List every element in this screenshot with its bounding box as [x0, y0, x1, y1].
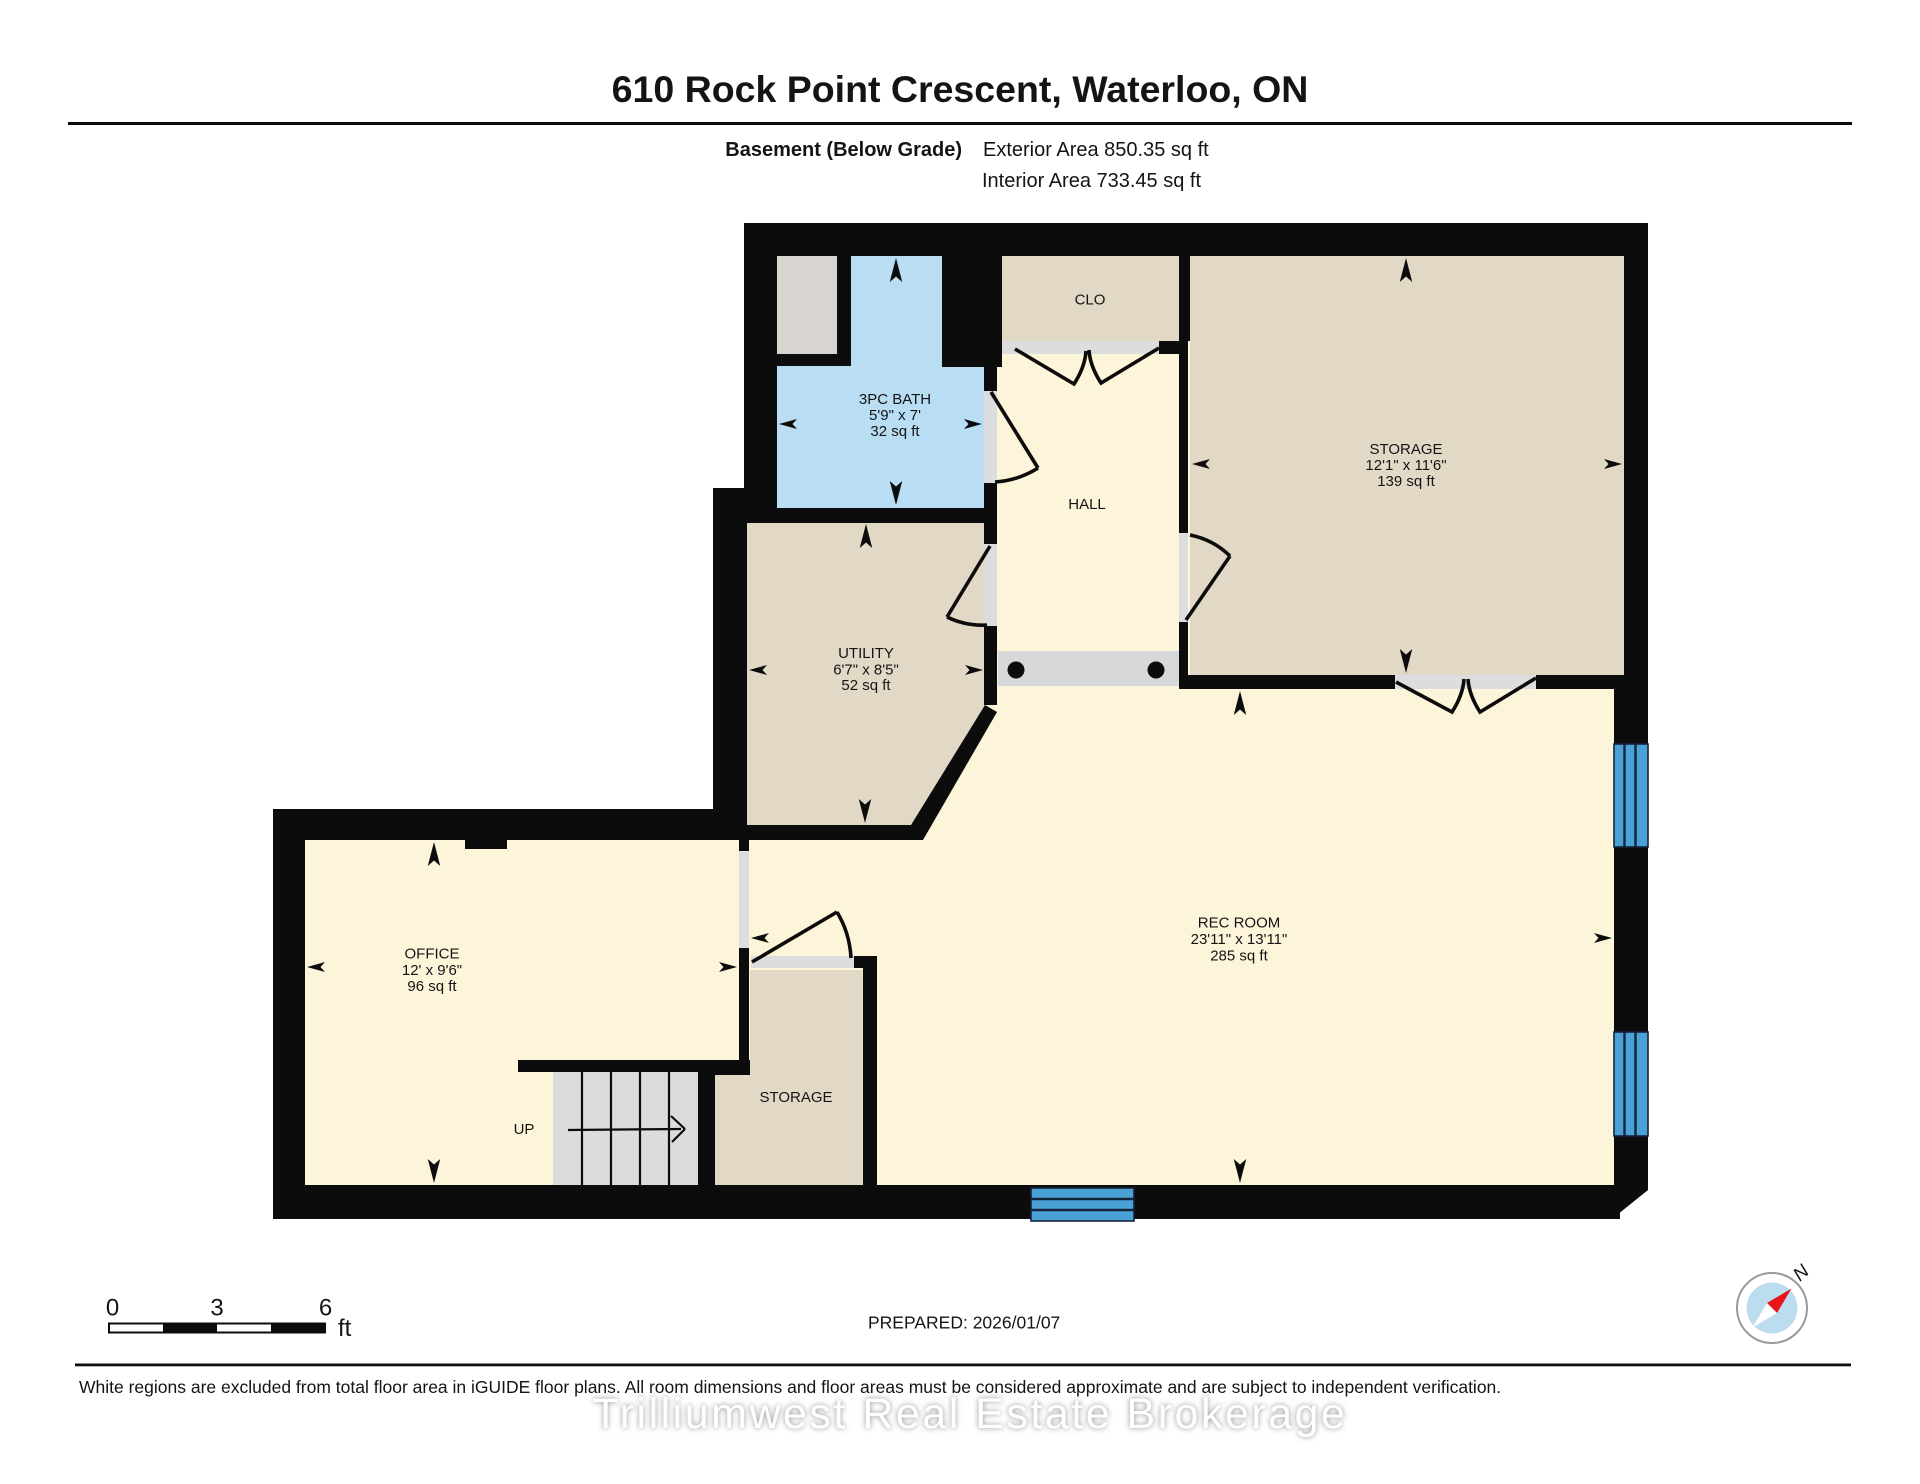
svg-text:5'9" x 7': 5'9" x 7' — [869, 407, 921, 424]
svg-text:STORAGE: STORAGE — [1369, 441, 1442, 458]
svg-text:52 sq ft: 52 sq ft — [841, 677, 891, 694]
svg-text:6: 6 — [319, 1295, 332, 1322]
svg-text:Trilliumwest Real Estate Broke: Trilliumwest Real Estate Brokerage — [593, 1390, 1348, 1438]
svg-text:23'11" x 13'11": 23'11" x 13'11" — [1191, 931, 1288, 948]
svg-text:Basement (Below Grade): Basement (Below Grade) — [725, 139, 962, 161]
svg-text:Exterior Area 850.35 sq ft: Exterior Area 850.35 sq ft — [983, 139, 1209, 161]
svg-text:CLO: CLO — [1075, 292, 1106, 309]
svg-text:12'1" x 11'6": 12'1" x 11'6" — [1365, 457, 1446, 474]
svg-text:STORAGE: STORAGE — [759, 1089, 832, 1106]
svg-text:139 sq ft: 139 sq ft — [1377, 473, 1435, 490]
svg-text:OFFICE: OFFICE — [405, 945, 460, 962]
svg-text:HALL: HALL — [1068, 496, 1106, 513]
svg-text:PREPARED: 2026/01/07: PREPARED: 2026/01/07 — [868, 1313, 1060, 1333]
svg-text:610 Rock Point Crescent, Water: 610 Rock Point Crescent, Waterloo, ON — [612, 68, 1309, 110]
svg-text:UP: UP — [514, 1121, 535, 1138]
svg-text:96 sq ft: 96 sq ft — [407, 978, 457, 995]
svg-text:32 sq ft: 32 sq ft — [870, 423, 920, 440]
svg-text:3: 3 — [210, 1295, 223, 1322]
svg-text:REC ROOM: REC ROOM — [1198, 915, 1281, 932]
svg-text:0: 0 — [106, 1295, 119, 1322]
svg-text:ft: ft — [338, 1315, 352, 1342]
svg-text:6'7" x 8'5": 6'7" x 8'5" — [833, 661, 899, 678]
svg-text:Interior Area 733.45 sq ft: Interior Area 733.45 sq ft — [982, 170, 1201, 192]
svg-text:UTILITY: UTILITY — [838, 645, 894, 662]
svg-text:3PC BATH: 3PC BATH — [859, 391, 931, 408]
svg-text:285 sq ft: 285 sq ft — [1210, 947, 1268, 964]
svg-text:12' x 9'6": 12' x 9'6" — [402, 962, 462, 979]
